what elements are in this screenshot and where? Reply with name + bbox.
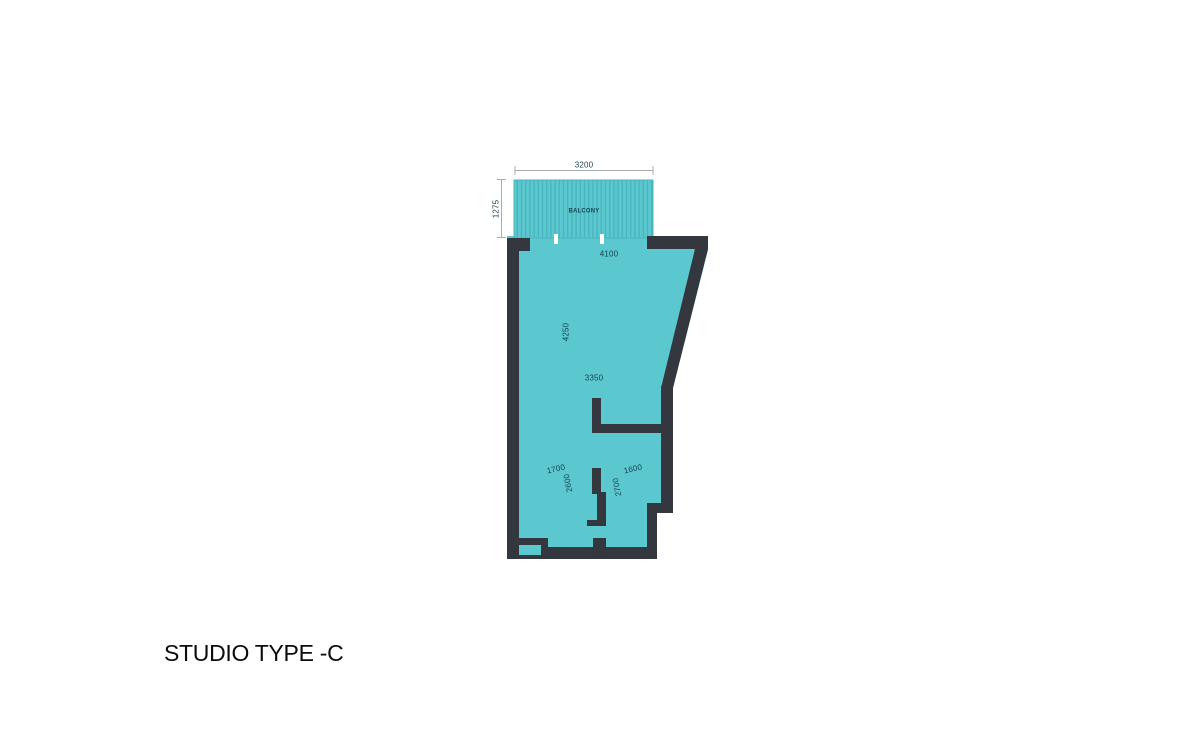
balcony-label: BALCONY bbox=[569, 208, 600, 215]
dim-living-length: 4250 bbox=[562, 323, 571, 342]
dim-bath-depth: 2600 bbox=[562, 473, 574, 493]
dim-bedroom-width: 1600 bbox=[623, 463, 643, 476]
dim-bedroom-depth: 2700 bbox=[611, 477, 623, 497]
floorplan-canvas: 3200 1275 BALCONY 4100 4250 3350 1700 26… bbox=[0, 0, 1200, 742]
dim-living-inner-width: 3350 bbox=[585, 374, 604, 383]
dim-balcony-depth: 1275 bbox=[492, 200, 501, 219]
dim-living-width: 4100 bbox=[600, 250, 619, 259]
label-layer: 3200 1275 BALCONY 4100 4250 3350 1700 26… bbox=[0, 0, 1200, 742]
dim-balcony-width: 3200 bbox=[575, 161, 594, 170]
plan-title: STUDIO TYPE -C bbox=[164, 640, 343, 667]
